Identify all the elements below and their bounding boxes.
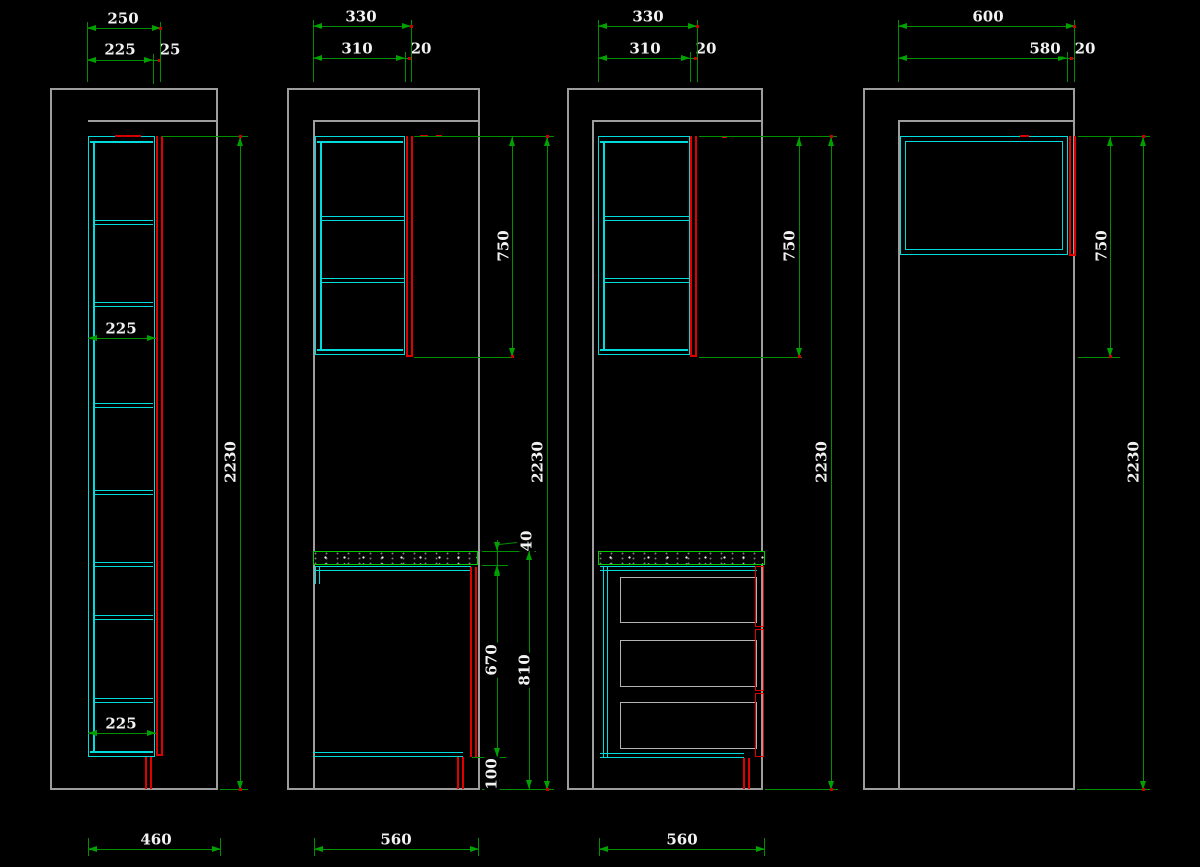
dim-label-floor-width-2: 560 (378, 833, 413, 848)
dim-arrow (313, 23, 322, 29)
shelf (603, 216, 689, 221)
dim-ext-line (1078, 357, 1120, 358)
dim-ext-line (898, 20, 899, 82)
red-tick (798, 355, 801, 358)
dim-label-total-height-4: 2230 (1127, 439, 1142, 485)
dim-label-countertop-thickness: 40 (520, 529, 535, 554)
dim-line (598, 26, 697, 27)
wall-cabinet-inner-bottom-line (600, 349, 688, 351)
dim-line (240, 137, 241, 790)
dim-line (598, 58, 690, 59)
red-mark (115, 135, 141, 137)
dim-label-wall-cabinet-height-2: 750 (497, 228, 512, 263)
dim-label-wall-cabinet-height-4: 750 (1095, 228, 1110, 263)
dim-arrow (144, 57, 153, 63)
wall-cabinet-body (598, 136, 690, 355)
dim-arrow (756, 846, 765, 852)
tall-cabinet-inner-bottom-line (90, 751, 153, 753)
wall-cabinet-body (315, 136, 405, 355)
countertop (598, 551, 765, 565)
red-tick (511, 355, 514, 358)
section-4-soffit-line (898, 120, 1075, 122)
dim-line (88, 733, 156, 734)
dim-arrow (1107, 137, 1113, 146)
red-tick (1109, 355, 1112, 358)
section-3-inner-wall-line (592, 120, 594, 790)
red-tick (830, 135, 833, 138)
shelf (93, 302, 153, 307)
dim-arrow (544, 137, 550, 146)
dim-label-overall-width-3: 330 (630, 10, 665, 25)
red-tick (830, 788, 833, 791)
dim-arrow (470, 846, 479, 852)
wall-cabinet-inner-top-line (317, 141, 403, 143)
dim-line (799, 137, 800, 357)
dim-ext-line (414, 136, 554, 137)
shelf (93, 698, 153, 703)
dim-arrow (599, 846, 608, 852)
red-tick (546, 788, 549, 791)
dim-arrow (898, 23, 907, 29)
wall-cabinet-inner-bottom-line (317, 349, 403, 351)
shelf (93, 615, 153, 620)
drawer-front (620, 640, 757, 687)
red-tick (159, 27, 162, 30)
dim-label-wall-cabinet-height-3: 750 (783, 228, 798, 263)
dim-ext-line (160, 22, 161, 82)
base-cabinet-left-return (315, 566, 320, 584)
dim-ext-line (414, 357, 514, 358)
tall-cabinet-door-edge (156, 136, 163, 756)
dim-label-interior-width-lower: 225 (103, 717, 138, 732)
base-cabinet-leg (457, 757, 464, 789)
base-cabinet-top-line (315, 566, 471, 571)
drawer-front (620, 577, 757, 623)
dim-arrow (147, 335, 156, 341)
dim-arrow (314, 846, 323, 852)
dim-ext-line (220, 789, 248, 790)
wall-cabinet-inner-left-line (320, 141, 322, 350)
dim-ext-line (697, 20, 698, 82)
dim-arrow (396, 55, 405, 61)
dim-label-interior-width-upper: 225 (103, 322, 138, 337)
dim-line (314, 849, 479, 850)
dim-arrow (237, 137, 243, 146)
dim-arrow (828, 137, 834, 146)
base-cabinet-leg (743, 758, 750, 789)
tall-cabinet-inner-top-line (90, 141, 153, 143)
wall-cabinet-door-edge (1069, 136, 1076, 256)
dim-ext-line (699, 136, 837, 137)
dim-label-cabinet-width-4: 580 (1027, 42, 1062, 57)
shelf (320, 278, 404, 283)
dim-label-cabinet-width-3: 310 (627, 42, 662, 57)
dim-label-door-thickness-2: 20 (409, 42, 434, 57)
dim-arrow (509, 137, 515, 146)
dim-ext-line (153, 54, 154, 84)
base-cabinet-left-side (603, 566, 608, 757)
dim-ext-line (411, 20, 412, 82)
dim-label-total-height-3: 2230 (815, 439, 830, 485)
cad-canvas: 250 225 25 225 225 2230 460 (0, 0, 1200, 867)
dim-ext-line (1077, 789, 1150, 790)
section-1-soffit-line (88, 120, 218, 122)
dim-arrow (526, 551, 532, 560)
dim-ext-line (598, 20, 599, 82)
dim-label-floor-width-3: 560 (664, 833, 699, 848)
dim-label-cabinet-width-2: 310 (339, 42, 374, 57)
dim-label-worktop-height: 810 (518, 652, 533, 687)
dim-label-overall-width-1: 250 (105, 12, 140, 27)
wall-cabinet-inner-top-line (600, 141, 688, 143)
dim-line (898, 26, 1075, 27)
shelf (93, 220, 153, 225)
dim-arrow (598, 55, 607, 61)
dim-ext-line (699, 357, 802, 358)
dim-arrow (494, 567, 500, 576)
dim-label-overall-width-2: 330 (343, 10, 378, 25)
dim-arrow (212, 846, 221, 852)
dim-label-plinth-height: 100 (485, 756, 500, 791)
dim-arrow (88, 730, 97, 736)
dim-arrow (598, 23, 607, 29)
dim-label-cabinet-width-1: 225 (102, 43, 137, 58)
dim-ext-line (313, 20, 314, 82)
dim-label-total-height-1: 2230 (224, 439, 239, 485)
dim-label-base-cabinet-height: 670 (485, 642, 500, 677)
dim-arrow (796, 137, 802, 146)
shelf (320, 216, 404, 221)
dim-label-overall-width-4: 600 (970, 10, 1005, 25)
drawer-edge (755, 629, 764, 691)
dim-ext-line (1067, 52, 1068, 82)
drawer-edge (755, 566, 764, 627)
section-2-soffit-line (313, 120, 480, 122)
tall-cabinet-leg (145, 757, 152, 789)
shelf (93, 403, 153, 408)
base-cabinet-bottom-line (313, 752, 463, 757)
wall-cabinet-inner-left-line (603, 141, 605, 350)
dim-line (599, 849, 765, 850)
dim-arrow (681, 55, 690, 61)
dim-line (313, 58, 405, 59)
red-tick (410, 25, 413, 28)
dim-label-floor-width-1: 460 (138, 833, 173, 848)
section-3-soffit-line (592, 120, 763, 122)
dim-ext-line (1074, 20, 1075, 82)
red-tick (546, 135, 549, 138)
dim-line (88, 338, 156, 339)
dim-ext-line (765, 789, 838, 790)
dim-line (898, 58, 1067, 59)
dim-arrow (87, 25, 96, 31)
dim-arrow (87, 57, 96, 63)
red-tick (1073, 25, 1076, 28)
red-tick (1142, 135, 1145, 138)
base-cabinet-door-edge (470, 567, 477, 757)
dim-arrow (147, 730, 156, 736)
dim-arrow (88, 335, 97, 341)
dim-ext-line (87, 22, 88, 82)
wall-cabinet-inner-outline (905, 141, 1063, 250)
dim-label-door-thickness-4: 20 (1073, 42, 1098, 57)
shelf (603, 278, 689, 283)
drawer-front (620, 702, 757, 749)
dim-line (88, 849, 221, 850)
dim-arrow (898, 55, 907, 61)
dim-arrow (1140, 137, 1146, 146)
base-cabinet-top-line (600, 566, 757, 571)
dim-ext-line (405, 52, 406, 82)
tall-cabinet-body (88, 136, 155, 757)
dim-line (831, 137, 832, 790)
countertop (313, 551, 478, 565)
red-tick (1070, 57, 1073, 60)
wall-cabinet-door-edge (690, 136, 697, 357)
red-tick (239, 135, 242, 138)
dim-line (313, 26, 411, 27)
dim-arrow (88, 846, 97, 852)
dim-line (87, 28, 161, 29)
red-tick (696, 25, 699, 28)
red-mark (1020, 135, 1029, 137)
dim-leader-line (499, 542, 517, 545)
base-cabinet-bottom-line (600, 753, 744, 758)
dim-label-total-height-2: 2230 (531, 439, 546, 485)
red-tick (239, 788, 242, 791)
dim-line (1143, 137, 1144, 790)
dim-arrow (313, 55, 322, 61)
dim-arrow (526, 780, 532, 789)
wall-cabinet-door-edge (406, 136, 413, 357)
dim-line (547, 137, 548, 790)
drawer-edge (755, 693, 764, 757)
tall-cabinet-inner-left-line (93, 141, 95, 752)
dim-label-door-thickness-1: 25 (158, 43, 183, 58)
shelf (93, 562, 153, 567)
dim-ext-line (162, 136, 248, 137)
shelf (93, 490, 153, 495)
dim-ext-line (690, 52, 691, 82)
red-tick (1142, 788, 1145, 791)
